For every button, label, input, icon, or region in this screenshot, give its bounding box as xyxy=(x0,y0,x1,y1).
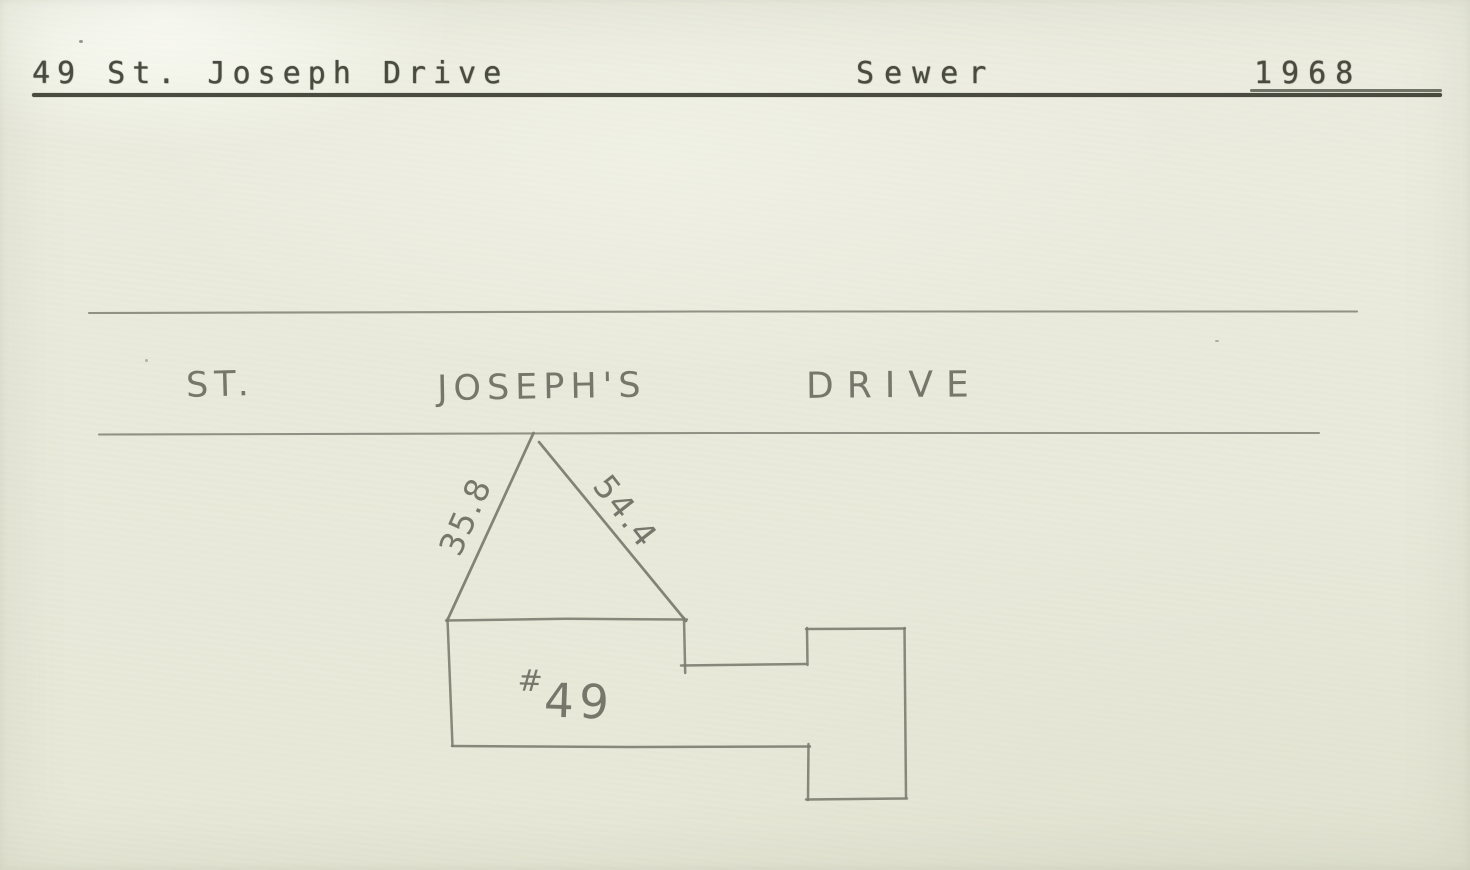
street-name-word-st: ST. xyxy=(186,364,256,406)
street-name-word-josephs: JOSEPH'S xyxy=(435,365,647,409)
scanned-record-card: 49 St. Joseph Drive Sewer 1968 ST. JOSEP… xyxy=(0,0,1470,870)
street-top-line xyxy=(89,312,1357,314)
street-bottom-line xyxy=(99,433,1319,435)
house-number-value: 49 xyxy=(543,673,615,730)
house-outline xyxy=(446,618,907,800)
house-number-prefix: # xyxy=(517,664,543,700)
measurement-left-leg: 35.8 xyxy=(431,471,500,561)
house-number-label: #49 xyxy=(516,664,615,731)
sewer-plot-diagram: ST. JOSEPH'S DRIVE 35.8 54.4 #49 xyxy=(0,0,1470,870)
street-name-word-drive: DRIVE xyxy=(806,364,982,407)
